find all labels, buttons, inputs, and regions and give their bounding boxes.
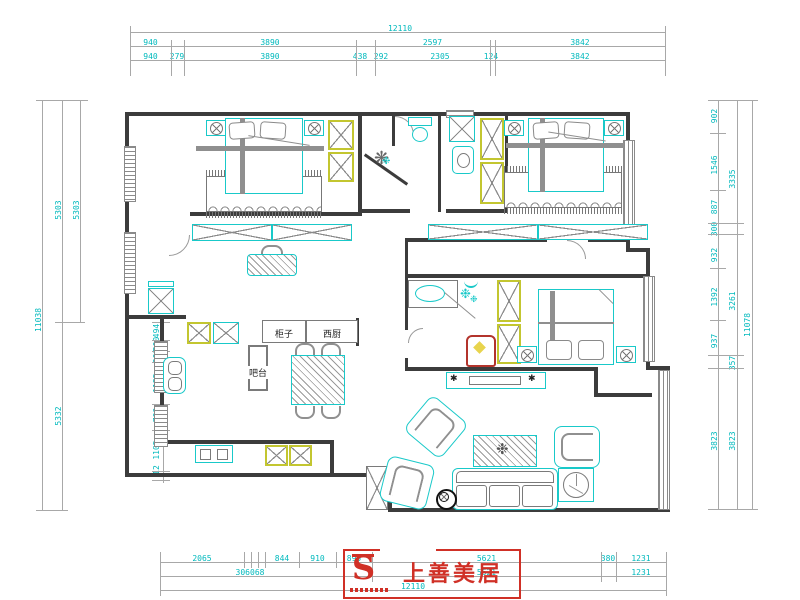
nightstand: [517, 346, 537, 363]
dim-label: 3261: [729, 284, 737, 318]
dim-label: 2597: [375, 39, 490, 47]
dim-label: 12110: [360, 25, 440, 33]
stool-cushion: [473, 341, 486, 354]
table-spoke: [576, 474, 577, 486]
tick: [666, 552, 667, 596]
wall: [405, 274, 649, 278]
wall: [446, 209, 508, 213]
tick: [708, 368, 744, 369]
washbasin: [452, 146, 474, 174]
tick: [258, 552, 259, 568]
dim-label: 3335: [729, 162, 737, 196]
tv: [469, 376, 521, 385]
tick: [708, 234, 744, 235]
dim-line: [737, 100, 738, 510]
window: [124, 146, 136, 202]
dim-label: 3823: [711, 424, 719, 458]
burner: [217, 449, 228, 460]
dim-label: 1392: [711, 280, 719, 314]
stamp-border-gap: [430, 591, 490, 597]
wall: [358, 112, 362, 216]
nightstand: [616, 346, 636, 363]
tick: [152, 471, 170, 472]
wardrobe: [328, 120, 354, 150]
basin-bowl: [457, 153, 470, 168]
window: [154, 405, 168, 447]
tick: [160, 552, 161, 596]
desk: [247, 254, 297, 276]
tick: [356, 40, 357, 76]
dining-table: [291, 355, 345, 405]
dim-label: 910: [299, 555, 336, 563]
dim-label: 3890: [184, 39, 356, 47]
wall: [438, 112, 441, 212]
dining-chair: [295, 406, 315, 419]
cabinet: [192, 224, 272, 241]
wall: [594, 393, 652, 397]
dim-line: [752, 100, 753, 510]
wall: [128, 112, 630, 116]
lamp-icon: [608, 122, 621, 135]
pillow: [578, 340, 604, 360]
dim-line: [62, 100, 63, 510]
dim-label: 1546: [711, 148, 719, 182]
tick: [665, 26, 666, 76]
tick: [184, 40, 185, 76]
wardrobe: [497, 280, 521, 322]
wall: [330, 440, 334, 476]
dim-label: 932: [711, 238, 719, 272]
window: [643, 276, 655, 362]
dining-chair: [321, 406, 341, 419]
pillow: [546, 340, 572, 360]
wardrobe: [328, 152, 354, 182]
armchair-seat: [389, 464, 426, 502]
tick: [708, 100, 758, 101]
tick: [710, 190, 726, 191]
beam-line: [506, 143, 624, 148]
double-sink: [163, 357, 186, 394]
stool-pattern: [439, 492, 449, 502]
burner: [200, 449, 211, 460]
nightstand: [504, 120, 524, 136]
speaker-icon: ✱: [528, 373, 536, 384]
speaker-icon: ✱: [450, 373, 458, 384]
dim-label: 937: [711, 324, 719, 358]
dim-label: 3823: [729, 424, 737, 458]
beam-line: [196, 146, 324, 151]
logo-microtext: [350, 588, 388, 592]
stove: [195, 445, 233, 463]
lamp-icon: [508, 122, 521, 135]
dim-label: 3890: [184, 53, 356, 61]
shower-spray-icon: ❉: [470, 294, 478, 305]
armchair: [403, 394, 469, 460]
window: [124, 232, 136, 294]
wardrobe: [480, 162, 504, 204]
window: [658, 370, 670, 510]
toilet-tank: [408, 117, 432, 126]
floor-plan-canvas: 12110 940 3890 2597 3842 940 279 3890 43…: [0, 0, 800, 600]
logo-glyph-bar: [352, 554, 374, 557]
sofa: [452, 468, 558, 510]
kitchen-cabinet: [265, 445, 288, 466]
nightstand: [206, 120, 226, 136]
tick: [708, 355, 744, 356]
cabinet: [428, 224, 538, 240]
dim-label: 306068: [200, 569, 300, 577]
nightstand: [604, 120, 624, 136]
lamp-icon: [308, 122, 321, 135]
tick: [336, 552, 337, 568]
dim-label: 1231: [616, 569, 666, 577]
pillow: [228, 121, 255, 140]
tick: [244, 552, 245, 568]
tick: [36, 100, 88, 101]
washing-machine: [148, 288, 174, 314]
armchair-seat: [414, 405, 458, 449]
lamp-icon: [620, 349, 633, 362]
sofa-back: [456, 471, 554, 483]
west-kitchen-label: 西厨: [306, 327, 358, 340]
dim-label: 11038: [35, 303, 43, 337]
tick: [55, 322, 85, 323]
dim-label: 5303: [55, 193, 63, 227]
dim-label: 3842: [495, 39, 665, 47]
sofa-cushion: [522, 485, 553, 507]
wall: [362, 209, 410, 213]
lamp-icon: [210, 122, 223, 135]
wall: [405, 242, 408, 278]
sofa-cushion: [489, 485, 520, 507]
dim-label: 292: [370, 53, 392, 61]
dim-label: 5303: [73, 193, 81, 227]
tick: [299, 552, 300, 568]
dim-label: 2305: [390, 53, 490, 61]
dim-label: 940: [130, 39, 171, 47]
basin: [415, 285, 445, 302]
bar-label: 吧台: [236, 366, 280, 379]
cabinet-label: 柜子: [262, 327, 306, 340]
beam-line: [550, 291, 555, 343]
pillow: [532, 121, 559, 140]
sink-bowl: [168, 377, 182, 391]
bath-stool: [466, 335, 496, 367]
rug-fringe: [504, 208, 622, 214]
dim-label: 11078: [744, 308, 752, 342]
rug-fringe: [206, 212, 322, 218]
dim-label: 2065: [160, 555, 244, 563]
blanket-line: [538, 322, 614, 324]
tick: [710, 268, 726, 269]
kitchen-cabinet: [187, 322, 211, 344]
cabinet: [272, 224, 352, 241]
dim-label: 12: [153, 453, 161, 487]
tick: [495, 40, 496, 76]
wardrobe: [480, 118, 504, 160]
window: [623, 140, 635, 236]
cabinet: [538, 224, 648, 240]
armchair: [554, 426, 600, 468]
dim-label: 902: [711, 99, 719, 133]
nightstand: [304, 120, 324, 136]
sofa-cushion: [456, 485, 487, 507]
tick: [710, 133, 726, 134]
stool: [436, 489, 457, 510]
tick: [251, 552, 252, 568]
door-arc: [402, 322, 444, 364]
wall: [162, 440, 334, 444]
tick: [708, 223, 744, 224]
tick: [490, 40, 491, 76]
dim-label: 357: [729, 346, 737, 380]
kitchen-cabinet: [289, 445, 312, 466]
stamp-border-gap: [380, 547, 436, 553]
toilet-bowl: [412, 127, 428, 142]
dim-label: 5332: [55, 399, 63, 433]
tick: [708, 509, 758, 510]
tick: [130, 26, 131, 76]
tick: [710, 320, 726, 321]
shower-tray: [449, 116, 475, 142]
tick: [375, 40, 376, 76]
wall: [520, 367, 598, 371]
lamp-icon: [521, 349, 534, 362]
sink-bowl: [168, 361, 182, 375]
dim-label: 1231: [616, 555, 666, 563]
side-table-box: [558, 468, 594, 502]
logo-brand: 上善美居: [392, 556, 514, 588]
dim-label: 3842: [495, 53, 665, 61]
tick: [152, 480, 170, 481]
dim-label: 844: [265, 555, 299, 563]
tick: [171, 40, 172, 76]
tick: [601, 552, 602, 582]
armchair-seat: [561, 433, 593, 461]
kitchen-cabinet: [213, 322, 239, 344]
plant-icon: ❉: [382, 156, 390, 167]
tick: [265, 552, 266, 568]
appliance-top: [148, 281, 174, 287]
tick: [616, 552, 617, 582]
tick: [36, 510, 68, 511]
plant-icon: ❉: [496, 440, 509, 458]
wall: [128, 315, 186, 319]
wall: [125, 473, 392, 477]
